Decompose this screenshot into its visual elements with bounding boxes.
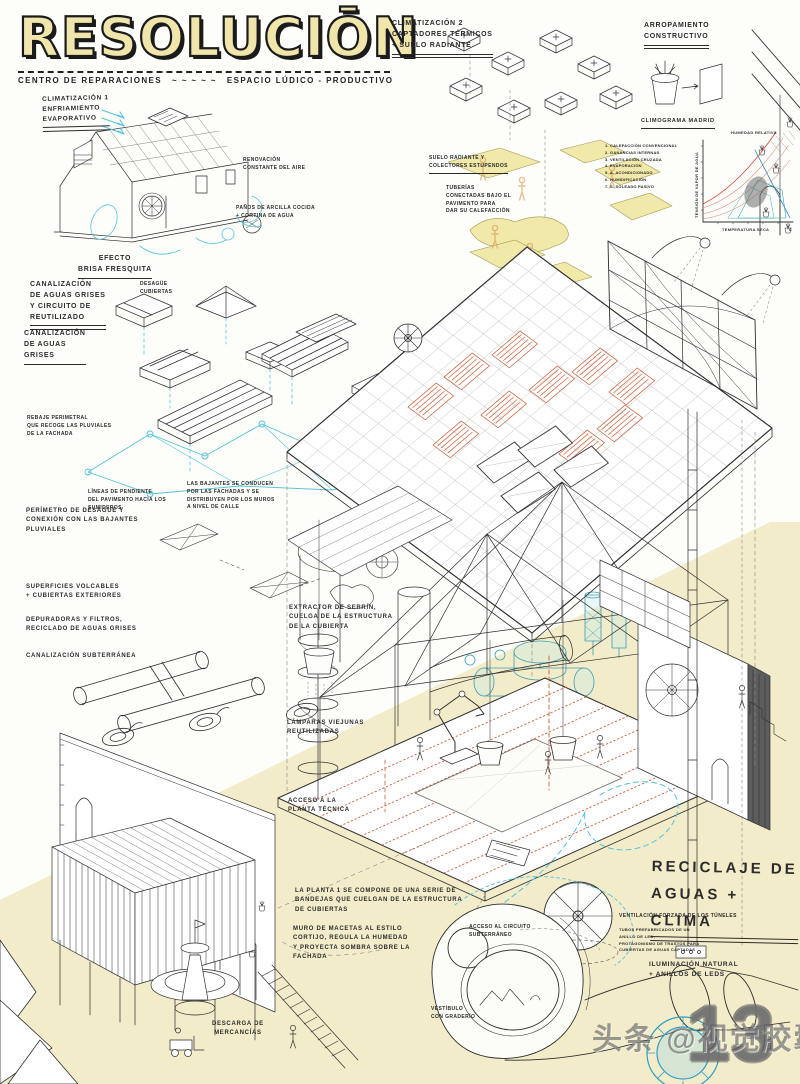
label-ventilacion: VENTILACIÓN FORZADA DE LOS TÚNELES xyxy=(619,913,737,921)
label-canalizacion-grises: CANALIZACIÓN DE AGUAS GRISES xyxy=(24,329,86,365)
exploded-roofs-small xyxy=(116,286,294,408)
label-climatizacion-2: CLIMATIZACIÓN 2 CAPTADORES TÉRMICOS + SU… xyxy=(392,19,493,58)
subtitle-right: ESPACIO LÚDICO - PRODUCTIVO xyxy=(227,76,394,85)
page-title: RESOLUCIŌN xyxy=(18,10,418,67)
label-climatizacion-1: CLIMATIZACIÓN 1 ENFRIAMIENTO EVAPORATIVO xyxy=(42,93,110,131)
poster: RESOLUCIŌN CENTRO DE REPARACIONES ~ ~ ~ … xyxy=(0,0,800,1084)
label-arropamiento: ARROPAMIENTO CONSTRUCTIVO xyxy=(644,21,709,49)
label-rebaje-perimetral: REBAJE PERIMETRAL QUE RECOGE LAS PLUVIAL… xyxy=(27,415,111,438)
title-block: RESOLUCIŌN CENTRO DE REPARACIONES ~ ~ ~ … xyxy=(18,10,418,85)
label-renovacion: RENOVACIÓN CONSTANTE DEL AIRE xyxy=(243,157,305,173)
label-descarga: DESCARGA DE MERCANCÍAS xyxy=(212,1020,264,1039)
subtitle: CENTRO DE REPARACIONES ~ ~ ~ ~ ~ ESPACIO… xyxy=(18,76,418,85)
label-efecto-brisa: EFECTO BRISA FRESQUITA xyxy=(78,254,152,279)
label-acceso-circuito: ACCESO AL CIRCUITO SUBTERRÁNEO xyxy=(469,924,531,940)
label-acceso-planta: ACCESO A LA PLANTA TÉCNICA xyxy=(288,797,350,816)
porch-roof xyxy=(288,486,452,662)
label-suelo-radiante: SUELO RADIANTE Y COLECTORES ESTUPENDOS xyxy=(429,155,508,174)
label-canalizacion-subterranea: CANALIZACIÓN SUBTERRÁNEA xyxy=(26,652,136,661)
label-lamparas: LÁMPARAS VIEJUNAS REUTILIZADAS xyxy=(287,719,364,738)
chart-humidity-label: HUMEDAD RELATIVA xyxy=(731,130,777,137)
label-climograma: CLIMOGRAMA MADRID xyxy=(641,117,715,129)
label-canalizacion-circuito: CANALIZACIÓN DE AGUAS GRISES Y CIRCUITO … xyxy=(30,280,106,330)
label-superficies: SUPERFICIES VOLCABLES + CUBIERTAS EXTERI… xyxy=(26,583,121,602)
label-perimetro-desague: PERÍMETRO DE DESAGÜE Y CONEXIÓN CON LAS … xyxy=(26,507,138,535)
chart-x-axis-label: TEMPERATURA SECA xyxy=(722,227,769,234)
title-divider xyxy=(18,71,390,73)
subtitle-tildes: ~ ~ ~ ~ ~ xyxy=(172,76,217,85)
climogram-chart xyxy=(701,131,795,224)
label-bajantes: LAS BAJANTES SE CONDUCEN POR LAS FACHADA… xyxy=(187,481,275,512)
label-tuberias: TUBERÍAS CONECTADAS BAJO EL PAVIMENTO PA… xyxy=(446,185,511,216)
label-vestibulo: VESTÍBULO CON GRADERÍO xyxy=(431,1006,475,1022)
label-muro-macetas: MURO DE MACETAS AL ESTILO CORTIJO, REGUL… xyxy=(293,925,410,962)
label-planta-1: LA PLANTA 1 SE COMPONE DE UNA SERIE DE B… xyxy=(295,887,462,915)
label-tubos: TUBOS PREFABRICADOS DE UN ANILLO DE LED,… xyxy=(619,927,699,954)
label-depuradoras: DEPURADORAS Y FILTROS, RECICLADO DE AGUA… xyxy=(26,616,137,635)
label-extractor: EXTRACTOR DE SERRÍN, CUELGA DE LA ESTRUC… xyxy=(289,604,393,632)
watermark: 头条 @视觉胶囊 xyxy=(592,1014,800,1058)
chart-x-unit: °C xyxy=(787,227,792,234)
label-desague-cubiertas: DESAGÜE CUBIERTAS xyxy=(140,281,172,297)
plant-pot-detail xyxy=(651,61,722,104)
subtitle-left: CENTRO DE REPARACIONES xyxy=(18,76,162,85)
chart-y-axis-label: TENSIÓN DE VAPOR DE AGUA xyxy=(694,152,701,218)
label-panos-arcilla: PAÑOS DE ARCILLA COCIDA + CORTINA DE AGU… xyxy=(236,205,315,221)
chart-legend: 1. CALEFACCIÓN CONVENCIONAL 2. GANANCIAS… xyxy=(605,143,677,191)
label-iluminacion: ILUMINACIÓN NATURAL + ANILLOS DE LEDS xyxy=(649,960,738,980)
underground-pipes xyxy=(72,650,267,735)
